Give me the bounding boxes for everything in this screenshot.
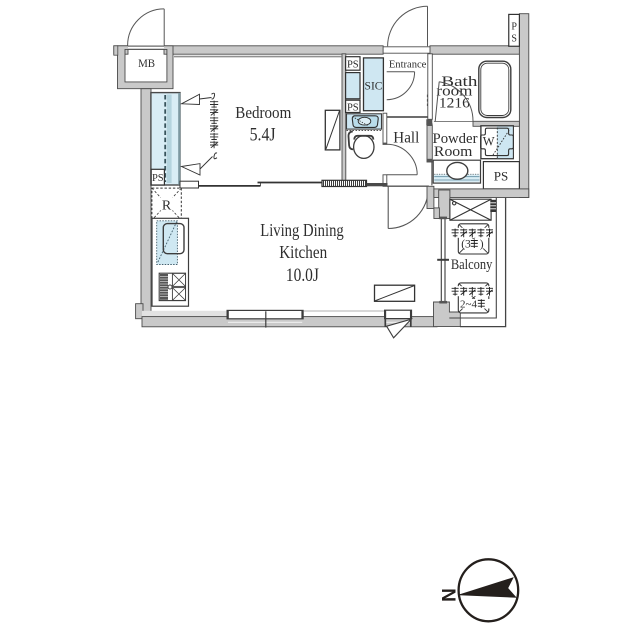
svg-text:5.4J: 5.4J <box>250 125 276 146</box>
svg-text:Hall: Hall <box>393 130 420 147</box>
svg-text:Room: Room <box>434 144 473 160</box>
svg-text:MB: MB <box>138 56 155 70</box>
svg-text:SIC: SIC <box>365 81 383 93</box>
svg-text:R: R <box>162 199 172 214</box>
svg-text:(3: (3 <box>461 238 471 250</box>
svg-text:2~4: 2~4 <box>460 298 477 310</box>
svg-text:PS: PS <box>347 60 359 71</box>
svg-text:W: W <box>483 135 495 149</box>
svg-text:Bedroom: Bedroom <box>235 103 291 122</box>
svg-text:PS: PS <box>152 173 164 184</box>
svg-text:Balcony: Balcony <box>451 257 493 273</box>
svg-text:PS: PS <box>494 169 508 184</box>
svg-text:10.0J: 10.0J <box>286 265 319 286</box>
svg-text:Living Dining: Living Dining <box>260 220 344 240</box>
svg-text:Kitchen: Kitchen <box>279 242 327 262</box>
svg-text:): ) <box>480 238 484 250</box>
svg-text:Entrance: Entrance <box>389 58 427 70</box>
svg-text:P: P <box>511 22 517 33</box>
svg-text:PS: PS <box>347 102 359 113</box>
svg-text:N: N <box>440 588 461 602</box>
svg-text:S: S <box>511 34 517 45</box>
